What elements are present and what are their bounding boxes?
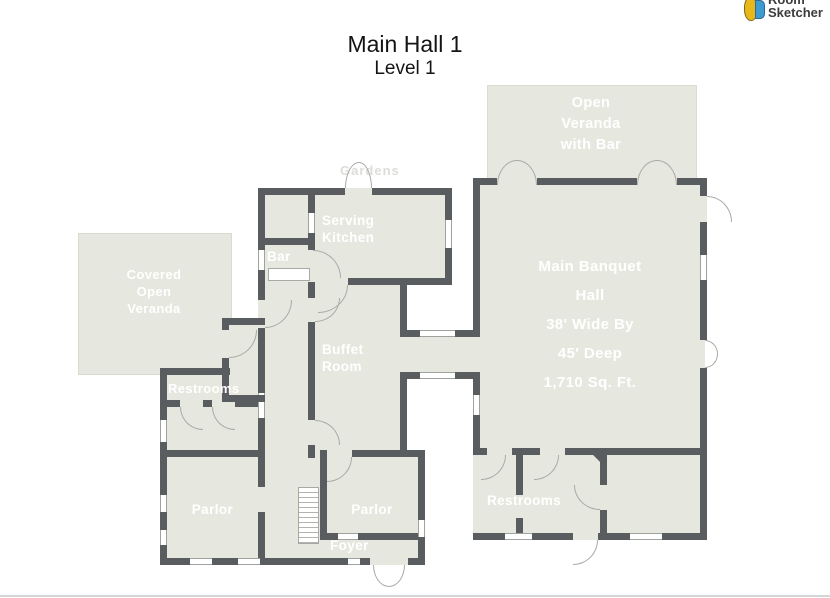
wall	[516, 448, 523, 495]
window	[308, 213, 315, 233]
wall	[167, 400, 180, 407]
window	[348, 558, 360, 565]
window	[418, 520, 425, 537]
wall	[418, 537, 425, 565]
wall	[320, 457, 327, 533]
room-label-restrooms-left: Restrooms	[168, 380, 240, 397]
wall	[160, 368, 167, 420]
window	[160, 420, 167, 442]
wall	[598, 533, 630, 540]
room-label-open-veranda: Open Veranda with Bar	[487, 93, 695, 156]
wall	[222, 318, 265, 325]
wall	[372, 188, 452, 195]
wall	[700, 178, 707, 196]
window	[420, 330, 455, 337]
window	[445, 220, 452, 248]
room-label-serving-kitchen: Serving Kitchen	[322, 212, 374, 246]
room-label-restrooms-right: Restrooms	[487, 492, 561, 509]
wall	[258, 188, 345, 195]
wall	[532, 533, 573, 540]
room-label-parlor-left: Parlor	[167, 501, 258, 518]
window	[258, 250, 265, 270]
wall	[445, 188, 452, 220]
window	[473, 395, 480, 415]
wall	[160, 512, 167, 530]
staircase	[298, 487, 319, 544]
wall	[308, 282, 315, 298]
window	[505, 533, 532, 540]
wall	[473, 533, 505, 540]
wall	[348, 278, 452, 285]
wall	[473, 448, 487, 455]
wall	[212, 558, 238, 565]
window	[630, 533, 662, 540]
wall	[418, 450, 425, 520]
wall	[662, 533, 707, 540]
window	[160, 495, 167, 512]
page-title: Main Hall 1	[255, 31, 555, 58]
wall	[537, 178, 637, 185]
wall	[407, 372, 420, 379]
door-arc	[389, 565, 405, 587]
wall	[400, 285, 407, 337]
wall	[160, 368, 230, 375]
roomsketcher-wordmark: Room Sketcher	[768, 0, 823, 19]
wall	[160, 450, 265, 457]
wall	[600, 455, 607, 485]
wall	[258, 328, 265, 393]
wall	[407, 330, 420, 337]
room-label-covered-veranda: Covered Open Veranda	[78, 266, 230, 317]
wall	[600, 448, 707, 455]
wall	[308, 322, 315, 420]
wall	[700, 222, 707, 255]
door-arc	[707, 196, 732, 222]
window	[420, 372, 455, 379]
floor-area	[407, 337, 473, 372]
door-arc	[373, 565, 389, 587]
door-arc	[573, 540, 598, 565]
wall	[455, 330, 473, 337]
wall	[260, 558, 348, 565]
brand-word-bottom: Sketcher	[768, 5, 823, 20]
wall	[400, 372, 407, 455]
wall	[258, 238, 315, 245]
wall	[258, 512, 265, 558]
wall	[445, 248, 452, 285]
wall	[455, 372, 473, 379]
page-bottom-border	[0, 595, 830, 597]
floor-plan-page: Main Hall 1 Level 1 Gardens Room Sketche…	[0, 0, 830, 598]
window	[160, 530, 167, 545]
wall	[352, 450, 425, 457]
wall	[203, 400, 212, 407]
roomsketcher-logo: Room Sketcher	[744, 0, 823, 20]
wall	[308, 445, 315, 458]
room-label-parlor-right: Parlor	[327, 501, 417, 518]
room-label-bar: Bar	[267, 248, 291, 265]
wall	[308, 188, 315, 213]
room-label-buffet-room: Buffet Room	[322, 341, 363, 375]
wall	[160, 558, 190, 565]
wall	[258, 457, 265, 487]
wall	[320, 450, 327, 457]
wall	[160, 457, 167, 495]
window	[190, 558, 212, 565]
wall	[235, 400, 258, 407]
roomsketcher-3d-icon	[744, 0, 765, 20]
room-label-main-banquet-hall: Main Banquet Hall 38' Wide By 45' Deep 1…	[473, 252, 707, 397]
wall	[258, 270, 265, 300]
room-label-foyer: Foyer	[330, 537, 369, 554]
bar-counter	[268, 268, 310, 281]
wall	[360, 558, 370, 565]
window	[238, 558, 260, 565]
page-subtitle-level: Level 1	[255, 58, 555, 80]
